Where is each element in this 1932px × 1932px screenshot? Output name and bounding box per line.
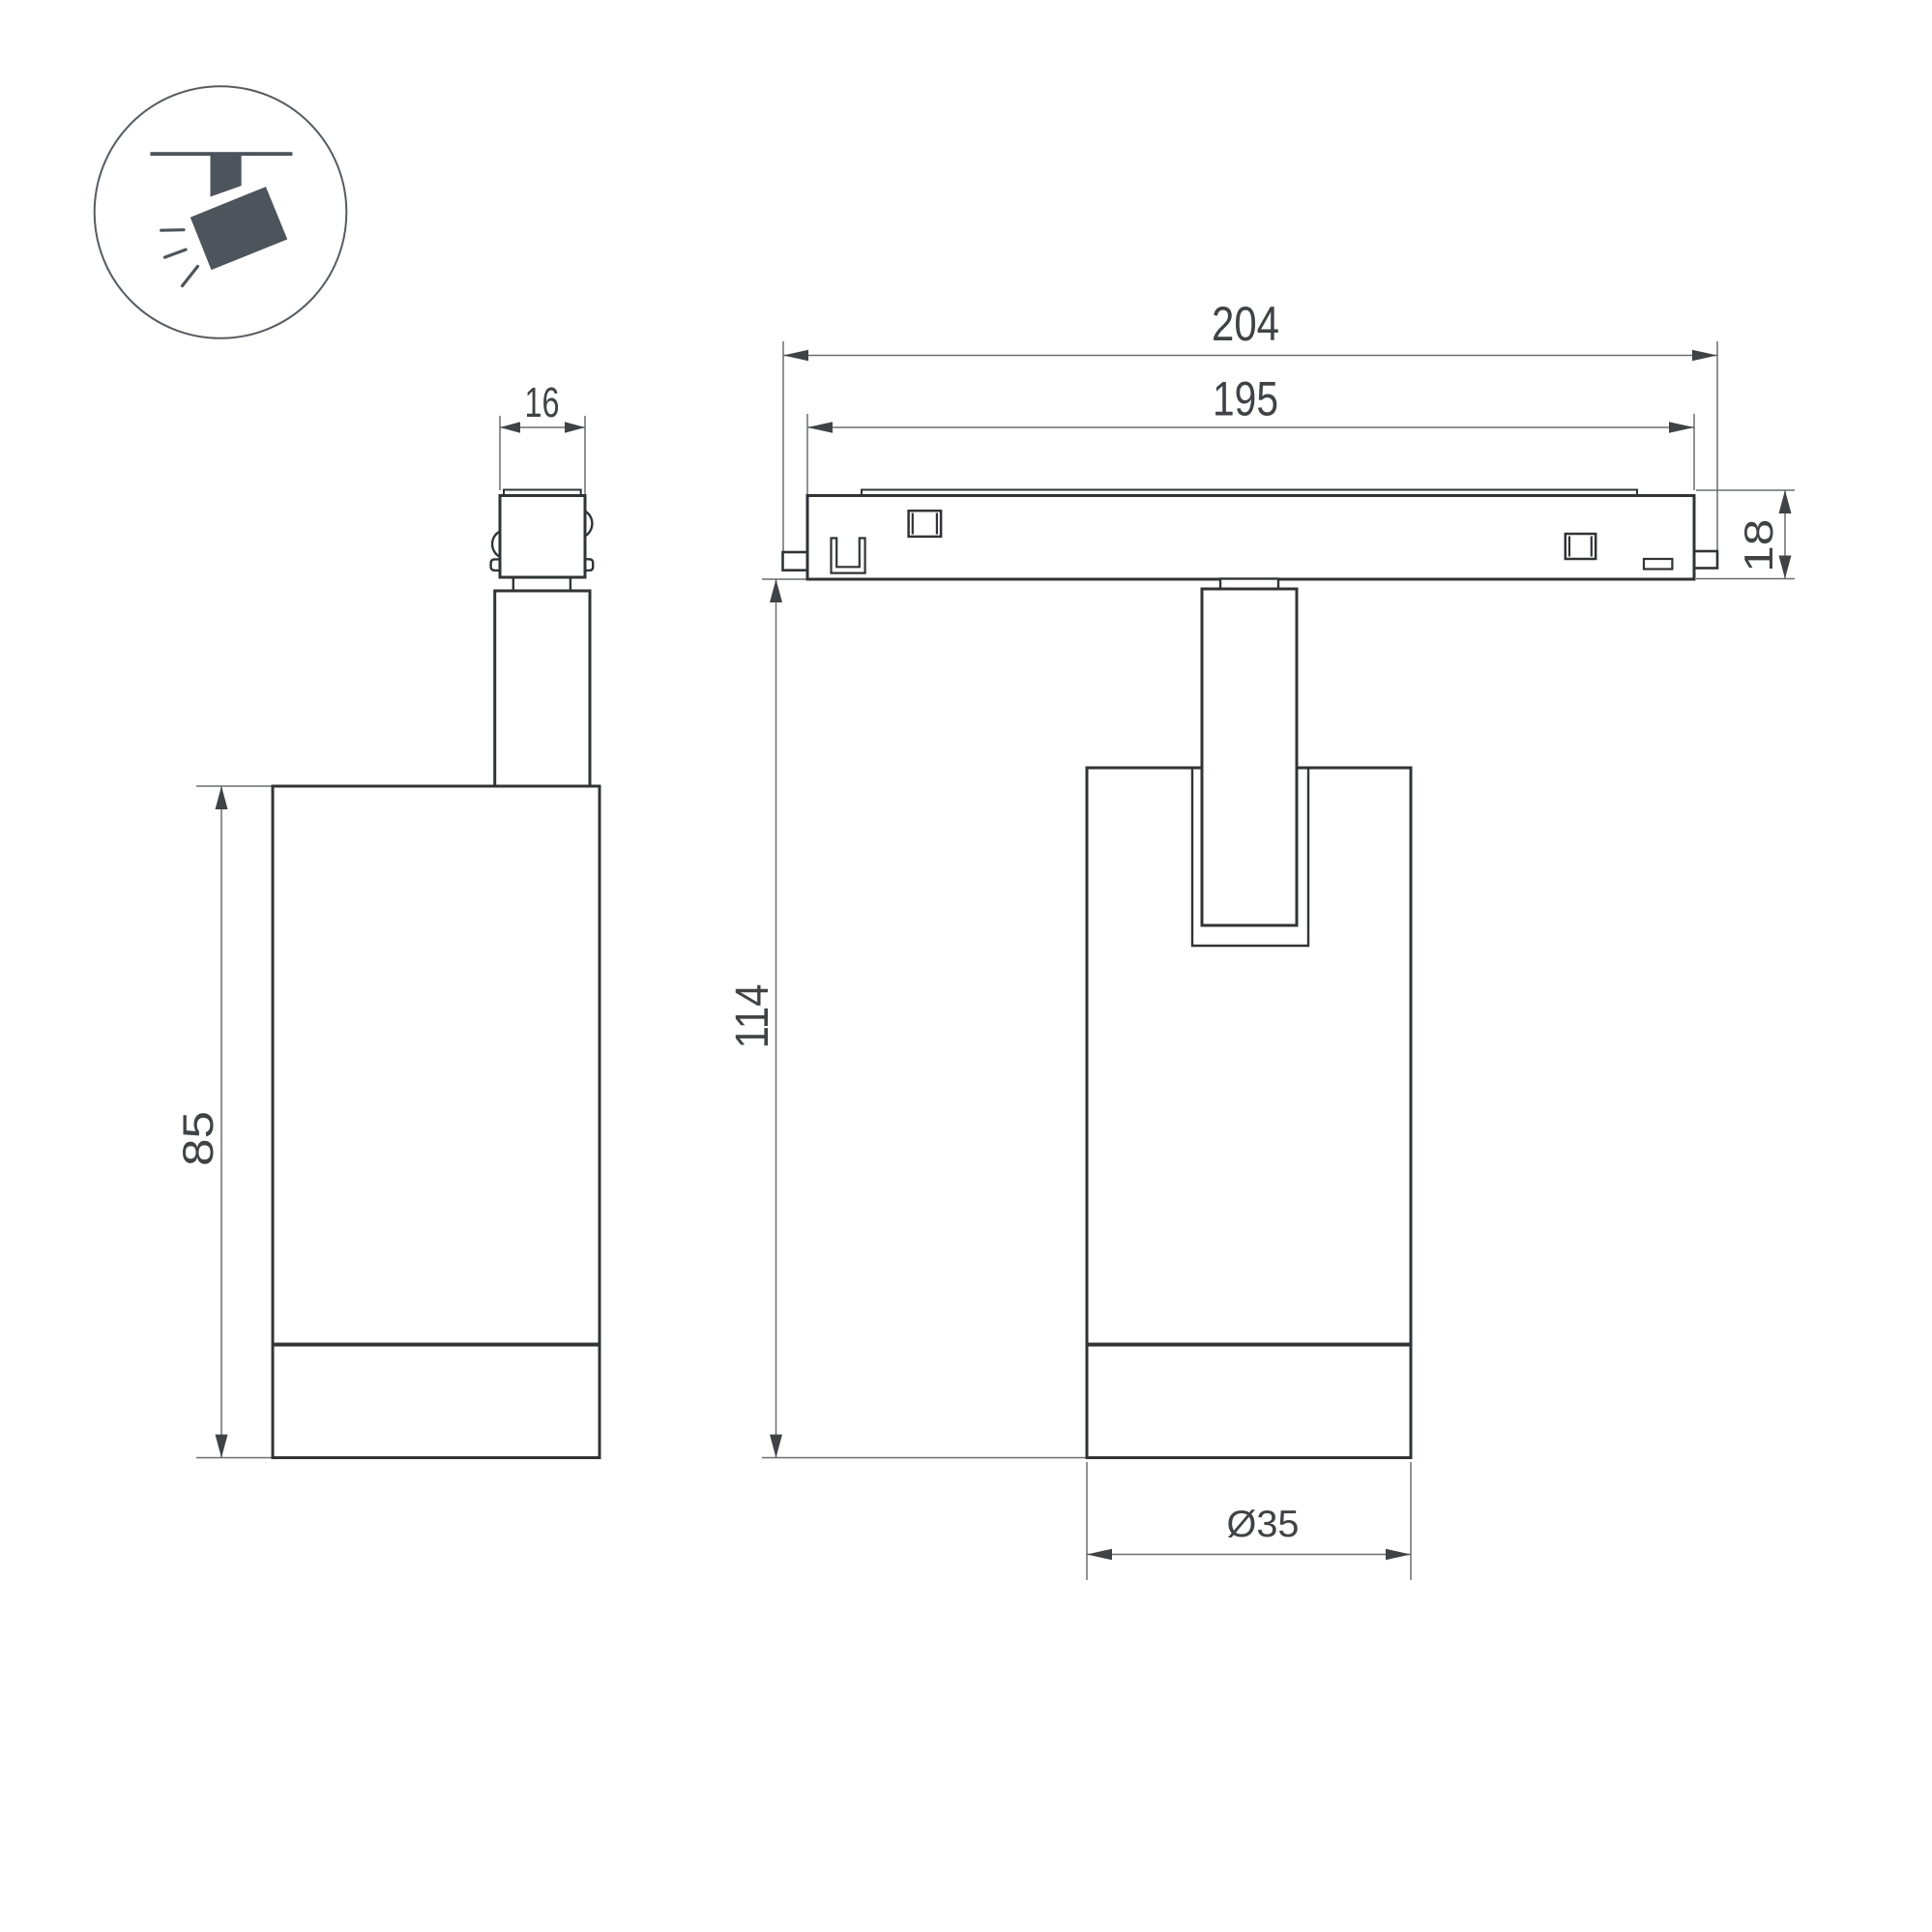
svg-text:18: 18 [1736,519,1781,572]
svg-text:Ø35: Ø35 [1227,1504,1300,1545]
svg-text:204: 204 [1212,297,1279,351]
svg-text:114: 114 [727,984,778,1049]
svg-text:16: 16 [525,379,560,426]
svg-text:195: 195 [1213,372,1278,426]
svg-text:85: 85 [175,1111,222,1166]
